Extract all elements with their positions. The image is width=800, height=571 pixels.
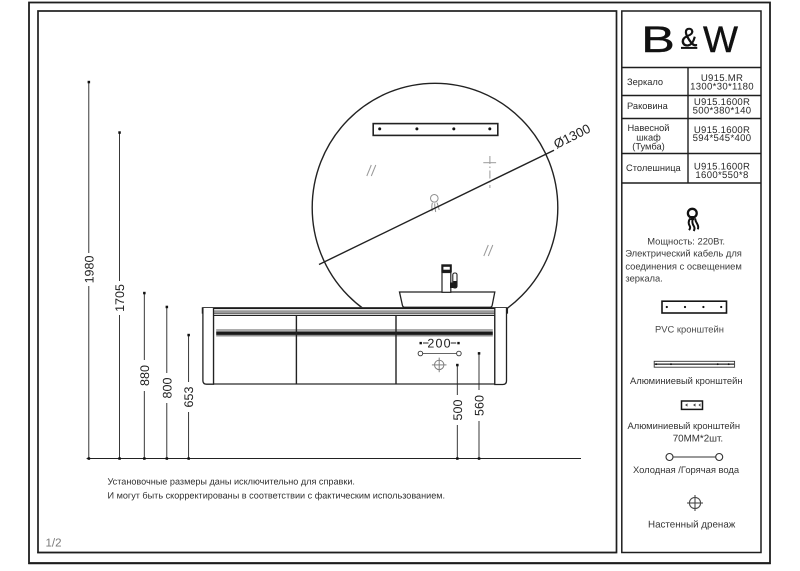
svg-text:соединения с освещением: соединения с освещением [625,261,741,272]
svg-text:Настенный дренаж: Настенный дренаж [648,520,736,531]
svg-text:500: 500 [451,400,465,421]
svg-text:Холодная /Горячая вода: Холодная /Горячая вода [633,464,740,475]
svg-text:Алюминиевый кронштейн: Алюминиевый кронштейн [628,420,741,431]
svg-text:1300*30*1180: 1300*30*1180 [690,81,754,92]
svg-text:1980: 1980 [82,256,96,284]
svg-text:1705: 1705 [113,284,127,312]
svg-text:B: B [641,19,675,60]
svg-text:Раковина: Раковина [627,101,669,111]
svg-text:500*380*140: 500*380*140 [693,105,752,116]
svg-text:И могут быть скорректированы в: И могут быть скорректированы в соответст… [108,491,446,501]
svg-text:Мощность: 220Вт.: Мощность: 220Вт. [647,236,725,247]
svg-text:(Тумба): (Тумба) [632,141,664,151]
svg-text:594*545*400: 594*545*400 [693,133,752,144]
svg-text:200: 200 [427,336,451,350]
svg-text:880: 880 [138,365,152,386]
svg-text:653: 653 [182,387,196,408]
svg-text:560: 560 [473,395,487,416]
svg-text:800: 800 [160,378,174,399]
svg-text:зеркала.: зеркала. [625,273,662,284]
svg-text:1/2: 1/2 [46,538,62,550]
svg-text:W: W [703,19,738,60]
svg-text:Установочные размеры даны искл: Установочные размеры даны исключительно … [108,477,355,487]
svg-text:1600*550*8: 1600*550*8 [695,170,748,181]
svg-text:Столешница: Столешница [626,163,682,173]
svg-text:Электрический кабель для: Электрический кабель для [625,248,742,259]
svg-text:Зеркало: Зеркало [627,77,663,87]
svg-text:PVC кронштейн: PVC кронштейн [655,324,724,335]
svg-text:70MM*2шт.: 70MM*2шт. [673,434,723,445]
svg-text:Алюминиевый кронштейн: Алюминиевый кронштейн [630,375,743,386]
svg-text:Навесной: Навесной [627,123,669,133]
